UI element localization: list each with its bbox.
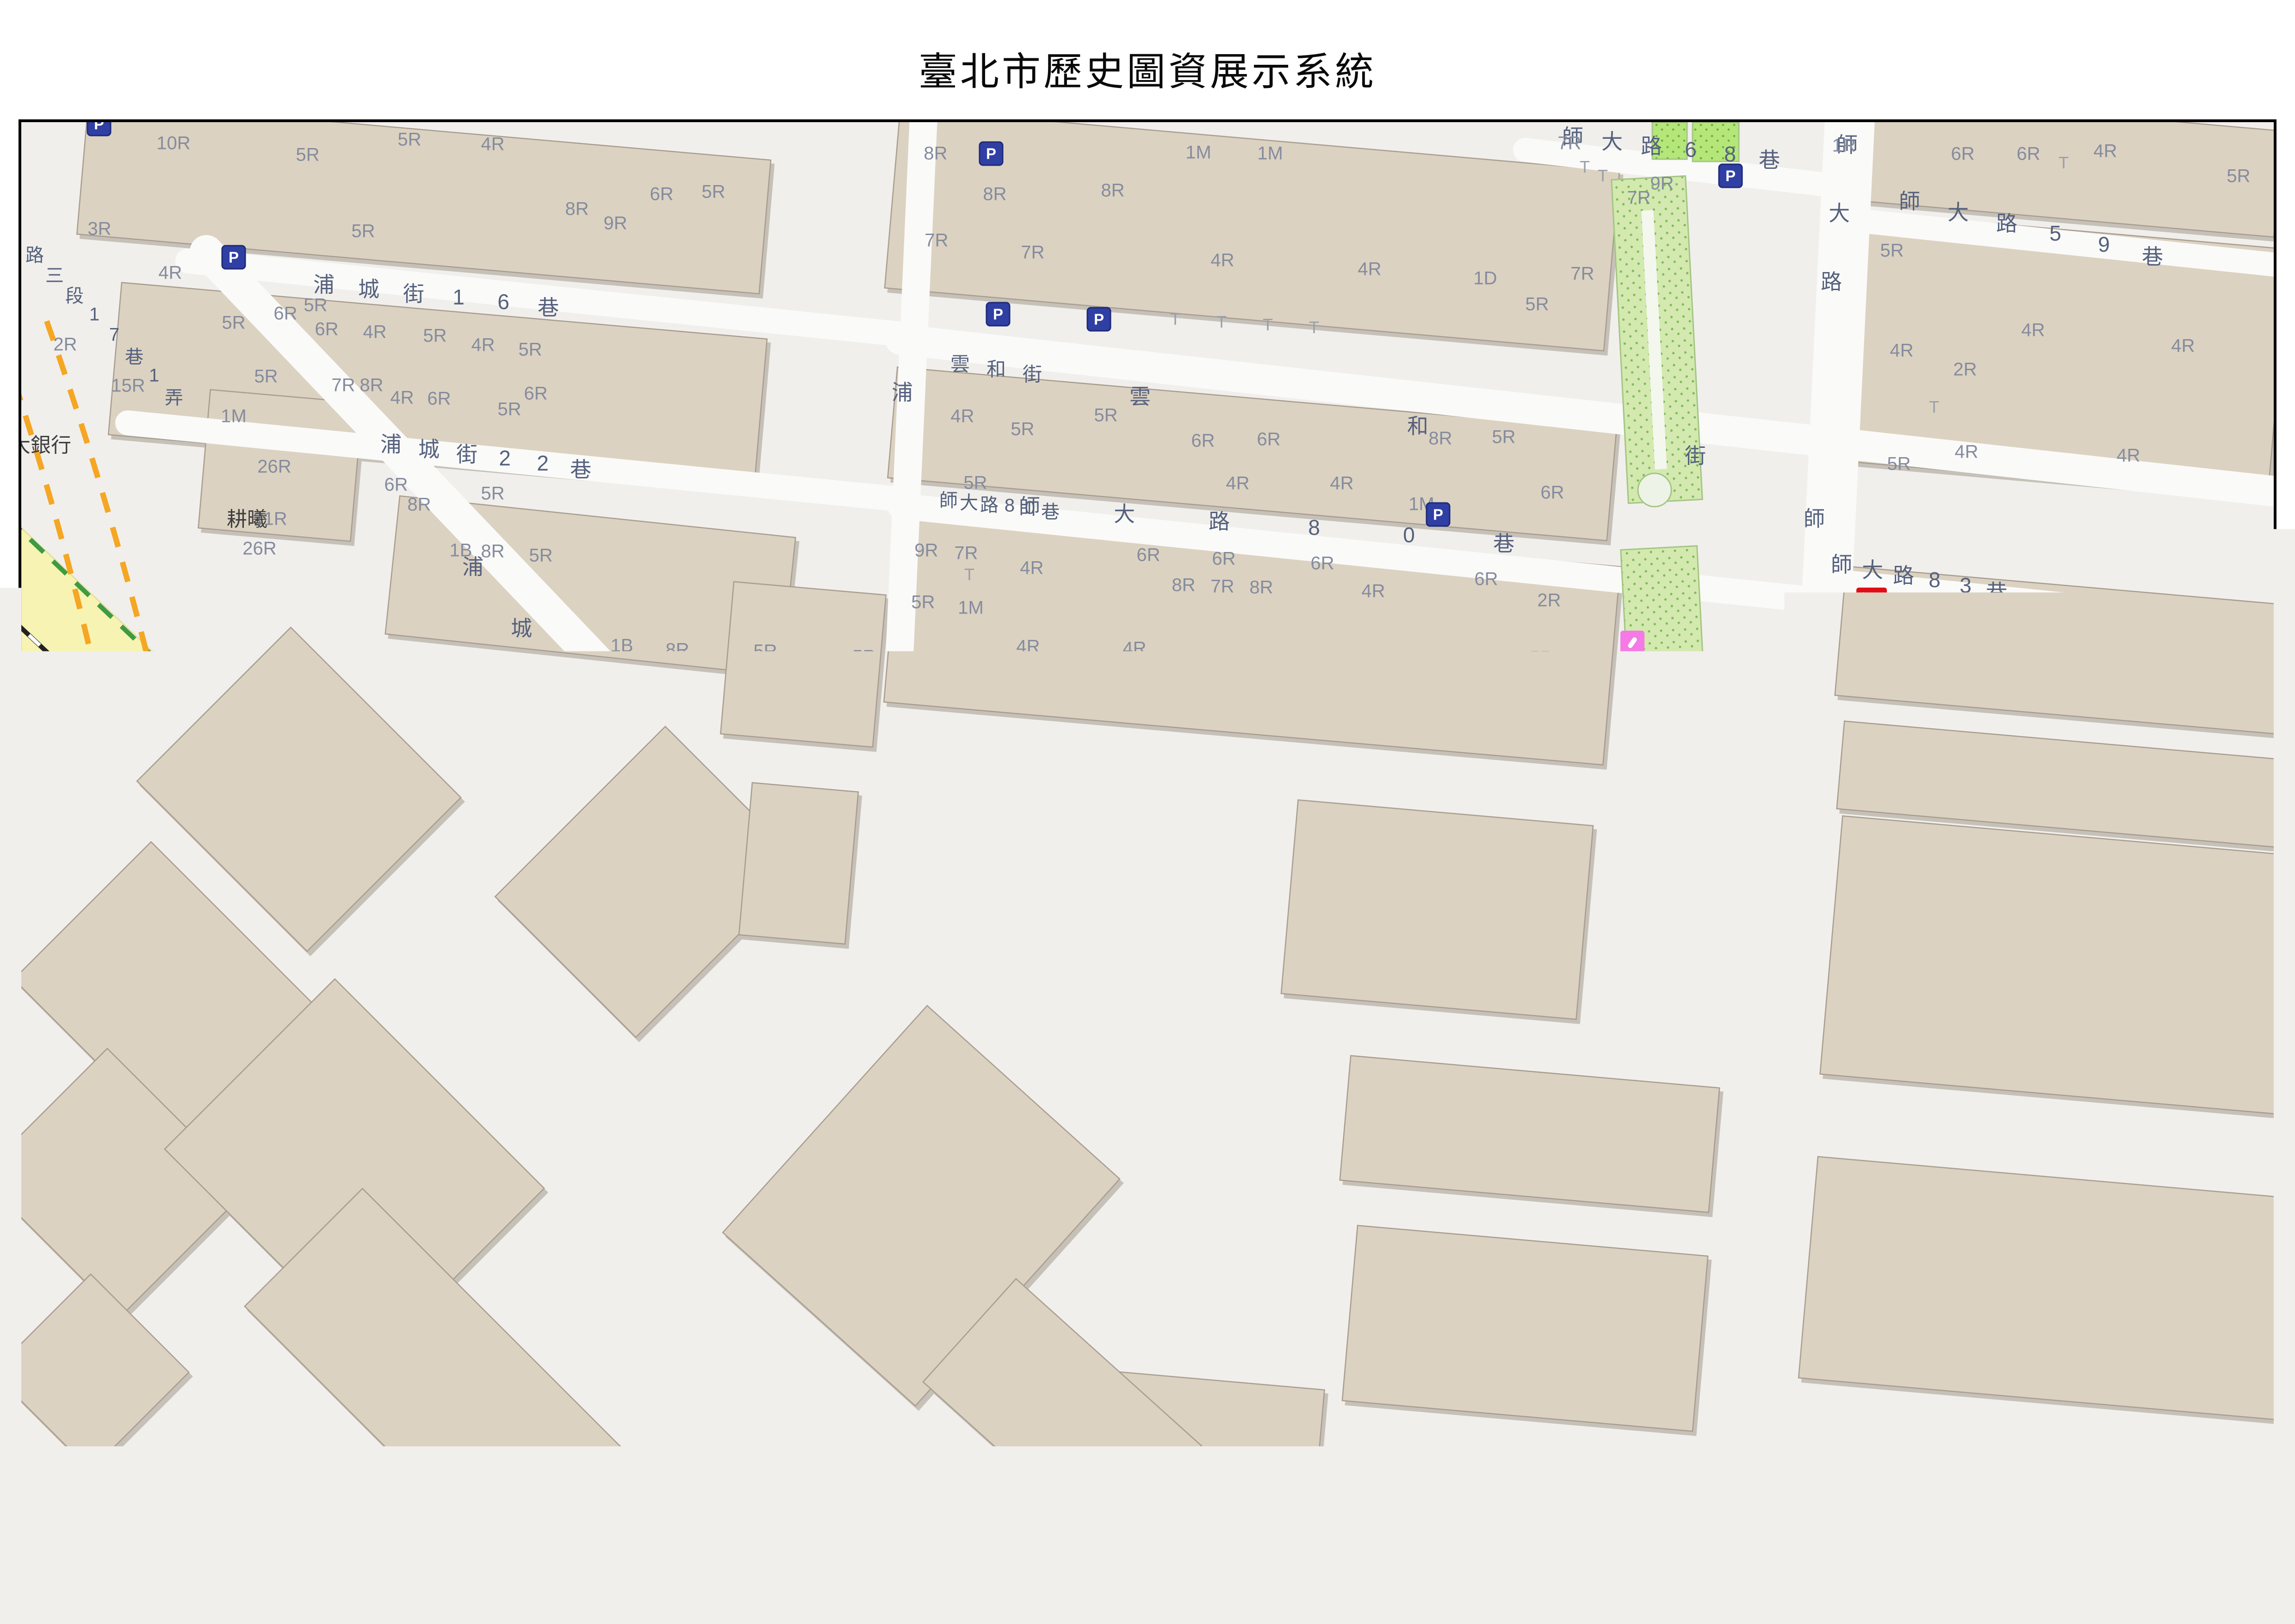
street-label: 師 (1884, 797, 1905, 827)
street-label: 三 (224, 911, 246, 942)
building-label: 7R (1930, 683, 1954, 704)
building-label: 8R (232, 678, 255, 699)
building-label: 26R (242, 539, 276, 559)
building-label: 8R (1626, 1271, 1650, 1292)
building-label: 6R (384, 475, 408, 496)
building-label: 5R (2227, 166, 2250, 187)
poi-label: 台灣金融研訓院 (299, 1098, 441, 1128)
poi-label: 信和師大樓 (2156, 1364, 2258, 1394)
building-label: 6R (524, 384, 547, 404)
street-label: 段 (256, 950, 278, 981)
building-label: 8R (2026, 1019, 2050, 1040)
toilet-icon (1620, 631, 1644, 655)
building-label: 5R (852, 647, 876, 668)
building-label: 6R (1257, 429, 1280, 450)
building-label: 4R (1998, 674, 2022, 694)
street-label: 巷 (1759, 143, 1780, 174)
street-label: 8 (980, 764, 990, 785)
parking-icon: P (1426, 502, 1451, 527)
building-label: 6R (1400, 671, 1424, 692)
street-label: 街 (456, 438, 478, 468)
building-label: 2B (1025, 1253, 1048, 1274)
building-label: 4R (1383, 1332, 1407, 1352)
building-label: 8R (1172, 575, 1195, 596)
building-label: 5R (1530, 648, 1553, 669)
building-label: 8R (1425, 1401, 1448, 1422)
building-label: 7R (1440, 673, 1464, 694)
building-label: 5R (1980, 1245, 2003, 1265)
building-label: 7R (781, 823, 805, 843)
poi-label: 大銀行 (19, 428, 71, 458)
building-label: 4R (950, 406, 974, 427)
parking-icon: P (2007, 693, 2031, 718)
building-label: 2R (1953, 360, 1977, 380)
t-mark: T (1580, 157, 1590, 177)
street-label: 巷 (230, 1127, 246, 1149)
t-mark: T (1309, 1240, 1319, 1259)
street-label: 大 (1797, 667, 1818, 698)
street-label: 路 (1996, 207, 2017, 237)
building-label: 4R (1374, 1406, 1397, 1426)
building-label: 5R (529, 545, 552, 566)
building-label: 4R (954, 674, 978, 694)
t-mark: T (1309, 318, 1319, 337)
building-label: 8R (360, 375, 383, 396)
building-label: 5R (665, 914, 689, 935)
building-label: 6R (791, 874, 814, 895)
building-label: 2R (248, 1051, 272, 1072)
street-label: 0 (1403, 522, 1415, 547)
page-title: 臺北市歷史圖資展示系統 (0, 41, 2295, 97)
street-label: 路 (1294, 1071, 1315, 1101)
building-label: 4R (471, 335, 495, 356)
street-label: 城 (828, 1103, 849, 1134)
building-label: 2B (931, 1147, 954, 1168)
street-label: 路 (1209, 505, 1230, 535)
street-label: 段 (261, 1096, 276, 1119)
street-label: 2 (750, 734, 760, 755)
building-label: 6R (2016, 144, 2040, 165)
building-label: 4R (1348, 1082, 1372, 1103)
building-label: 6R (273, 304, 297, 324)
parking-icon: P (986, 302, 1011, 327)
street-label: 1 (1486, 1207, 1498, 1232)
building-label: 4R (2093, 141, 2117, 162)
street-label: 雲 (950, 349, 970, 377)
street-label: 8 (1929, 567, 1941, 592)
street-label: 街 (1685, 439, 1706, 470)
building-label: 4R (1330, 473, 1353, 494)
building-label: 1B (899, 1335, 922, 1356)
street-label: 雲 (1129, 380, 1151, 410)
street-label: 泉 (2242, 1197, 2263, 1227)
building-label: 1M (1257, 143, 1283, 164)
street-label: 2 (499, 446, 511, 471)
building-label: 4R (1316, 916, 1340, 937)
building-label: 4R (2099, 781, 2122, 802)
building-label: 4R (1417, 847, 1440, 868)
street-label: 弄 (165, 383, 183, 409)
street-label: 巷 (125, 342, 143, 369)
building-label: 5R (254, 366, 278, 387)
street-label: 路 (192, 873, 214, 903)
street-label: 7 (109, 325, 119, 346)
building-label: 4R (1974, 615, 1997, 636)
street-label: 巷 (538, 291, 559, 322)
building-label: 3R (1186, 1413, 1210, 1433)
building-label: 8R (1376, 919, 1400, 940)
poi-label: 土地銀行 (1023, 1425, 1105, 1449)
street-label: 大 (1829, 197, 1850, 227)
building-label: 14R (474, 1427, 508, 1448)
street-label: 3 (1960, 573, 1972, 598)
street-label: 8 (1308, 515, 1320, 540)
building-label: 4R (1884, 605, 1908, 626)
building-label: 8R (924, 143, 947, 164)
building-label: 4R (2234, 641, 2258, 662)
street-label: 浦 (380, 428, 402, 458)
building-label: 2R (1654, 1124, 1677, 1145)
street-label: 浦 (892, 376, 913, 406)
street-label: 1 (453, 285, 465, 310)
building-label: 12R (315, 870, 349, 891)
street-label: 巷 (1671, 822, 1693, 853)
building-label: 5R (481, 483, 504, 504)
building-label: 7R (1021, 242, 1044, 263)
street-label: 大 (1174, 1059, 1195, 1089)
t-mark: T (1929, 397, 1939, 417)
building-label: 3R (890, 1220, 914, 1241)
building-label: 6R (2065, 626, 2088, 646)
building-label: 8R (1844, 660, 1868, 681)
building-label: 8R (1405, 955, 1428, 975)
parking-icon: P (1219, 744, 1243, 768)
building-label: 5R (1492, 427, 1515, 448)
building-label: 6R (1474, 569, 1498, 590)
building-label: 7R (2165, 959, 2189, 980)
street-label: 1 (89, 304, 99, 325)
building-label: 3R (1927, 763, 1950, 784)
building-label: 1M (958, 598, 984, 619)
building-label: 5R (351, 221, 375, 242)
building-label: 9R (2022, 890, 2045, 911)
street-label: 路 (1440, 1200, 1462, 1230)
building-label: 5R (1392, 1114, 1416, 1135)
street-label: 巷 (2184, 824, 2205, 855)
building-label: 4R (1884, 759, 1908, 780)
building-label: 1M (221, 406, 247, 427)
building-label: 1B (536, 1323, 559, 1344)
building-label: 4R (1020, 558, 1043, 579)
building-label: 5R (1348, 1302, 1372, 1322)
toilet-icon (1042, 1066, 1066, 1090)
building-label: 5R (1358, 685, 1382, 706)
street-label: 大 (920, 1033, 939, 1060)
street-label: 2 (537, 451, 549, 476)
building-label: 2R (53, 335, 77, 355)
street-label: 街 (403, 277, 424, 308)
street-label: 巷 (795, 736, 814, 763)
building-label: 15R (111, 376, 145, 397)
street-label: 城 (358, 273, 379, 303)
street-label: 1 (149, 366, 159, 386)
building-label: 8R (565, 199, 589, 220)
building-label: 4R (2116, 446, 2140, 466)
street-label: 巷 (2142, 240, 2163, 271)
street-label: 街 (1023, 359, 1042, 387)
building-label: 4R (390, 388, 414, 409)
street-label: 師 (1829, 696, 1850, 727)
building-label: 6R (1191, 431, 1215, 452)
street-label: 大 (1114, 497, 1135, 528)
street-label: 路 (1768, 1340, 1789, 1371)
parking-icon: P (87, 119, 112, 136)
building-label: 1R (1832, 136, 1855, 156)
map-canvas: 浦城街16巷浦城街22巷浦城街24巷浦城街26巷浦城街浦城街雲和街雲和街師大路8… (19, 119, 2276, 1449)
street-label: 1 (1398, 1376, 1410, 1401)
street-label: 6 (1560, 813, 1572, 838)
building-label: 2R (1537, 590, 1561, 611)
street-label: 路 (1790, 832, 1811, 863)
building-label: 5R (1525, 294, 1549, 315)
building-label: 4R (2096, 683, 2120, 704)
building-label: 5R (304, 295, 327, 316)
street-label: 巷 (1493, 527, 1514, 558)
building-label: 4R (1361, 581, 1385, 602)
building-label: 4R (1210, 250, 1234, 271)
street-label: 巷 (1417, 1438, 1438, 1449)
building-label: 8R (1883, 944, 1906, 965)
building-label: 7R (2100, 1268, 2124, 1289)
building-label: 7R (1452, 1096, 1476, 1116)
building-label: 1R (888, 1148, 912, 1169)
street-label: 師 (1359, 1191, 1380, 1222)
building-label: 12R (294, 1128, 328, 1148)
building-label: 4R (2026, 1249, 2050, 1270)
building-label: 8R (1934, 1010, 1957, 1031)
building-label: 3R (948, 1209, 972, 1229)
building-label: 3R (87, 219, 111, 240)
street-label: 路 (1893, 559, 1914, 589)
street-label: 5 (254, 1109, 263, 1127)
building-label: 6R (1374, 1239, 1397, 1260)
building-label: 5R (1929, 611, 1953, 632)
parking-icon: P (344, 1424, 369, 1448)
building-label: 4R (363, 322, 386, 343)
building-label: 5R (1887, 454, 1910, 475)
building-label: 7R (1980, 1015, 2003, 1035)
scale-bar-strip (1749, 1540, 2148, 1561)
building-label: 7R (1536, 947, 1559, 967)
street-label: 大 (1862, 553, 1883, 584)
parking-icon: P (961, 923, 985, 947)
street-label: 5 (2139, 823, 2151, 848)
building-label: 4R (1482, 849, 1505, 870)
street-label: 巷 (1002, 1048, 1020, 1074)
building-label: 4R (1123, 638, 1146, 659)
street-label: 師 (1781, 998, 1802, 1029)
street-label: 0 (2089, 818, 2101, 843)
street-label: 2 (613, 738, 625, 762)
building-label: 8R (1982, 885, 2006, 906)
building-label: 4R (2171, 336, 2195, 357)
street-label: 9 (1961, 713, 1973, 738)
building-label: 6R (2014, 772, 2037, 793)
building-label: 2R (1369, 652, 1393, 673)
street-label: 和 (986, 354, 1006, 382)
building-label: 5R (701, 182, 725, 203)
building-label: 26R (257, 457, 291, 477)
building-label: 5R (1971, 955, 1994, 975)
building-label: 4R (158, 263, 182, 284)
building-label: 6R (650, 184, 673, 205)
building-label: 6R (315, 319, 338, 340)
building-label: 7R (954, 543, 978, 564)
street-label: 巷 (570, 453, 591, 483)
open24-icon: 24H (1838, 737, 1868, 755)
building-label: 1D (1473, 268, 1497, 289)
building-label: 8R (481, 541, 504, 562)
parking-icon: P (159, 1200, 184, 1225)
building-label: 8R (407, 495, 431, 515)
building-label: 15R (90, 1124, 124, 1145)
building-label: 5R (518, 340, 542, 360)
building-label: 13R (2058, 1171, 2092, 1191)
street-label: 大 (936, 754, 955, 781)
building-label: 5R (423, 326, 447, 347)
date-label: 八月 25, 2020 (44, 1457, 178, 1489)
street-label: 師 (1804, 502, 1825, 533)
street-label: 2 (986, 1047, 996, 1068)
street-label: 路 (956, 757, 974, 784)
t-mark: T (1457, 1017, 1467, 1037)
building-label: 6R (1594, 1082, 1617, 1103)
poi-label: 遠東銀行 (158, 950, 240, 979)
building-label: 5R (1011, 419, 1034, 440)
street-label: 大 (1948, 196, 1969, 226)
building-label: 12R (451, 1376, 485, 1397)
street-label: 街 (854, 920, 875, 950)
building-label: 5R (1493, 1318, 1517, 1339)
page: 臺北市歷史圖資展示系統 (0, 0, 2295, 1624)
building-label: 1B (450, 540, 472, 561)
building-label: 11R (159, 1034, 191, 1055)
street-label: 師 (900, 1029, 918, 1056)
building-label: 5R (2143, 632, 2167, 653)
street-label: 9 (1419, 1085, 1431, 1110)
building-label: 5R (1938, 1240, 1962, 1261)
street-label: 8 (1724, 142, 1736, 167)
building-label: 9R (1445, 921, 1469, 942)
building-label: 12R (258, 714, 292, 735)
building-label: 4R (1836, 864, 1860, 885)
building-label: 4R (1846, 1235, 1869, 1256)
t-mark: T (1471, 1128, 1481, 1148)
building-label: 5R (2056, 776, 2080, 797)
street-label: 城 (511, 612, 532, 642)
building-label: 6R (1540, 483, 1564, 503)
t-mark: T (1598, 166, 1608, 186)
street-label: 路 (1324, 786, 1346, 817)
building-label: 13R (249, 773, 283, 794)
building-label: 8R (2098, 647, 2121, 668)
t-mark: T (1216, 1156, 1227, 1176)
parking-icon: P (2177, 1242, 2201, 1267)
scale-unit: m (2155, 1547, 2171, 1569)
parking-icon: P (687, 710, 711, 734)
street-label: 8 (1005, 496, 1015, 516)
street-label: 2 (1539, 1097, 1551, 1122)
poi-label: 耕曦 (227, 502, 267, 532)
street-label: 巷 (1041, 497, 1060, 524)
street-label: 路 (980, 490, 999, 517)
building-label: 5R (1371, 818, 1394, 839)
scale-tick: 10 (1788, 1514, 1810, 1536)
building-label: 6R (1418, 1260, 1441, 1281)
building-label: 4R (1878, 868, 1902, 889)
t-mark: T (1170, 310, 1180, 329)
building-label: 1M (1185, 143, 1211, 163)
street-label: 9 (2098, 232, 2110, 257)
street-label: 巷 (705, 858, 726, 888)
building-label: 4R (1441, 1160, 1464, 1181)
street-label: 浦 (820, 1033, 841, 1063)
building-label: 5R (1094, 405, 1117, 426)
street-label: 街 (559, 673, 581, 704)
poi-label: 古風公園 (2032, 1307, 2114, 1337)
street-label: 大 (1774, 1169, 1796, 1200)
building-label: 12R (630, 1048, 664, 1069)
building-label: 1B (611, 636, 633, 657)
building-label: 7R (2141, 786, 2165, 806)
building-label: 5R (1510, 1069, 1534, 1090)
building-label: 1B (1031, 1197, 1054, 1218)
building-label: 9R (1650, 174, 1674, 194)
building-label: 13R (2123, 972, 2157, 992)
building-label: 8R (2146, 1272, 2170, 1293)
street-label: 和 (1407, 409, 1428, 440)
t-mark: T (964, 565, 974, 584)
street-label: 城 (418, 433, 440, 463)
building-label: 2B (775, 1046, 798, 1066)
street-label: 0 (1526, 1211, 1538, 1236)
building-label: 4R (2021, 320, 2045, 341)
parking-icon: P (1096, 911, 1120, 936)
building-label: 5R (1543, 1248, 1566, 1269)
building-label: 6R (2054, 944, 2078, 965)
street-label: 師 (1347, 1243, 1369, 1274)
building-label: 12R (376, 944, 410, 965)
street-label: 街 (720, 728, 739, 755)
street-label: 巷 (1603, 1216, 1625, 1247)
street-label: 浦 (313, 268, 335, 298)
parking-icon: P (2106, 997, 2130, 1021)
map-features: 浦城街16巷浦城街22巷浦城街24巷浦城街26巷浦城街浦城街雲和街雲和街師大路8… (21, 122, 2274, 1446)
street-label: 路 (941, 1036, 959, 1063)
street-label: 師 (1019, 490, 1040, 521)
street-label: 大 (1601, 125, 1623, 155)
building-label: 2R (986, 1184, 1010, 1205)
t-mark: T (1263, 315, 1273, 335)
building-label: 4R (1016, 637, 1040, 657)
building-label: 2R (1971, 767, 1994, 788)
street-label: 大 (1400, 1196, 1421, 1226)
building-label: 8R (1101, 180, 1124, 201)
building-label: 10R (156, 133, 190, 154)
building-label: 4R (2019, 620, 2043, 641)
scale-bar: 01020406080 m (1749, 1514, 2202, 1574)
street-label: 師 (916, 751, 935, 778)
